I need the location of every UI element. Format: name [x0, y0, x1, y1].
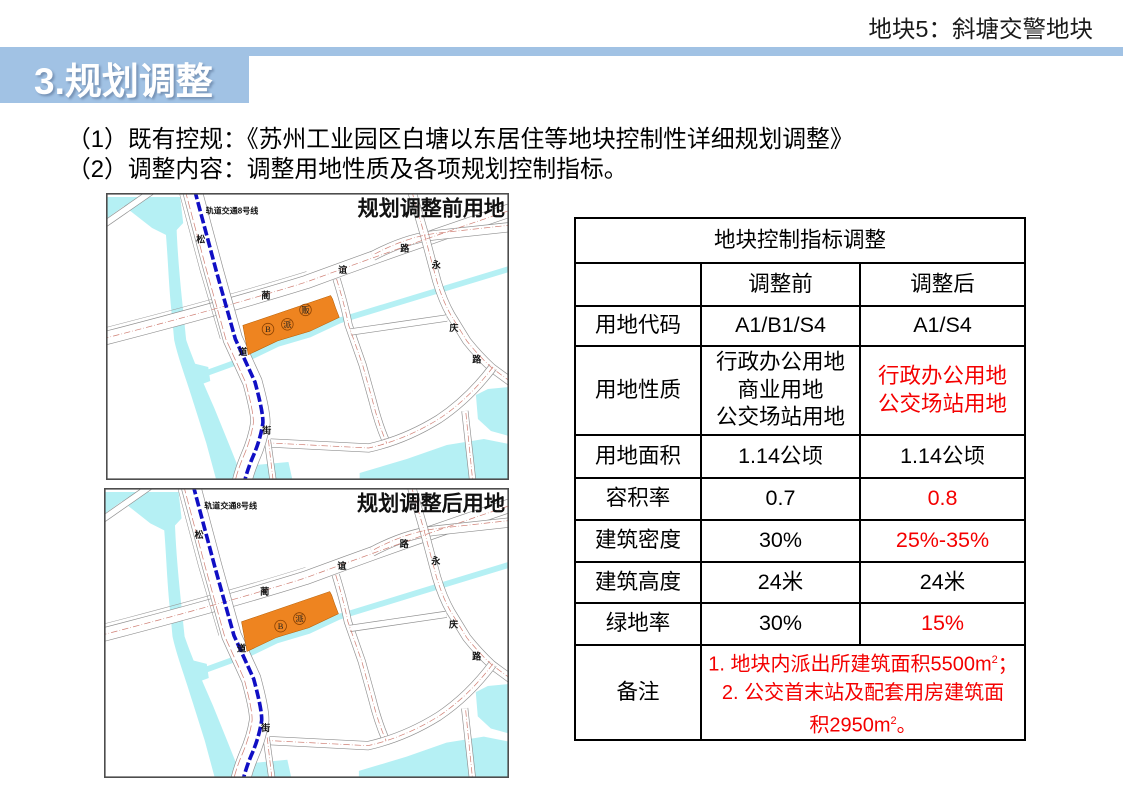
svg-text:轨道交通8号线: 轨道交通8号线	[204, 501, 257, 511]
svg-text:蔺: 蔺	[261, 290, 270, 301]
svg-text:庆: 庆	[448, 619, 459, 630]
svg-text:蔺: 蔺	[260, 586, 269, 597]
svg-text:道: 道	[238, 346, 247, 357]
svg-text:松: 松	[196, 234, 205, 245]
svg-text:规划调整前用地: 规划调整前用地	[358, 197, 505, 221]
svg-text:B: B	[265, 325, 271, 334]
svg-text:贩: 贩	[301, 305, 310, 315]
svg-text:路: 路	[400, 538, 410, 549]
svg-text:轨道交通8号线: 轨道交通8号线	[206, 205, 259, 215]
svg-text:永: 永	[430, 555, 441, 566]
svg-text:永: 永	[431, 259, 442, 270]
svg-text:路: 路	[472, 354, 482, 365]
svg-text:谊: 谊	[337, 560, 346, 571]
svg-text:街: 街	[261, 425, 271, 436]
svg-text:庆: 庆	[448, 322, 458, 333]
svg-text:B: B	[278, 621, 284, 631]
svg-text:街: 街	[260, 722, 270, 733]
svg-text:规划调整后用地: 规划调整后用地	[357, 491, 505, 516]
svg-text:松: 松	[195, 529, 204, 540]
svg-text:道: 道	[237, 643, 246, 654]
svg-text:派: 派	[283, 319, 292, 329]
svg-text:谊: 谊	[338, 264, 347, 275]
svg-text:路: 路	[472, 650, 482, 661]
svg-text:路: 路	[400, 243, 410, 254]
svg-text:派: 派	[295, 614, 304, 624]
